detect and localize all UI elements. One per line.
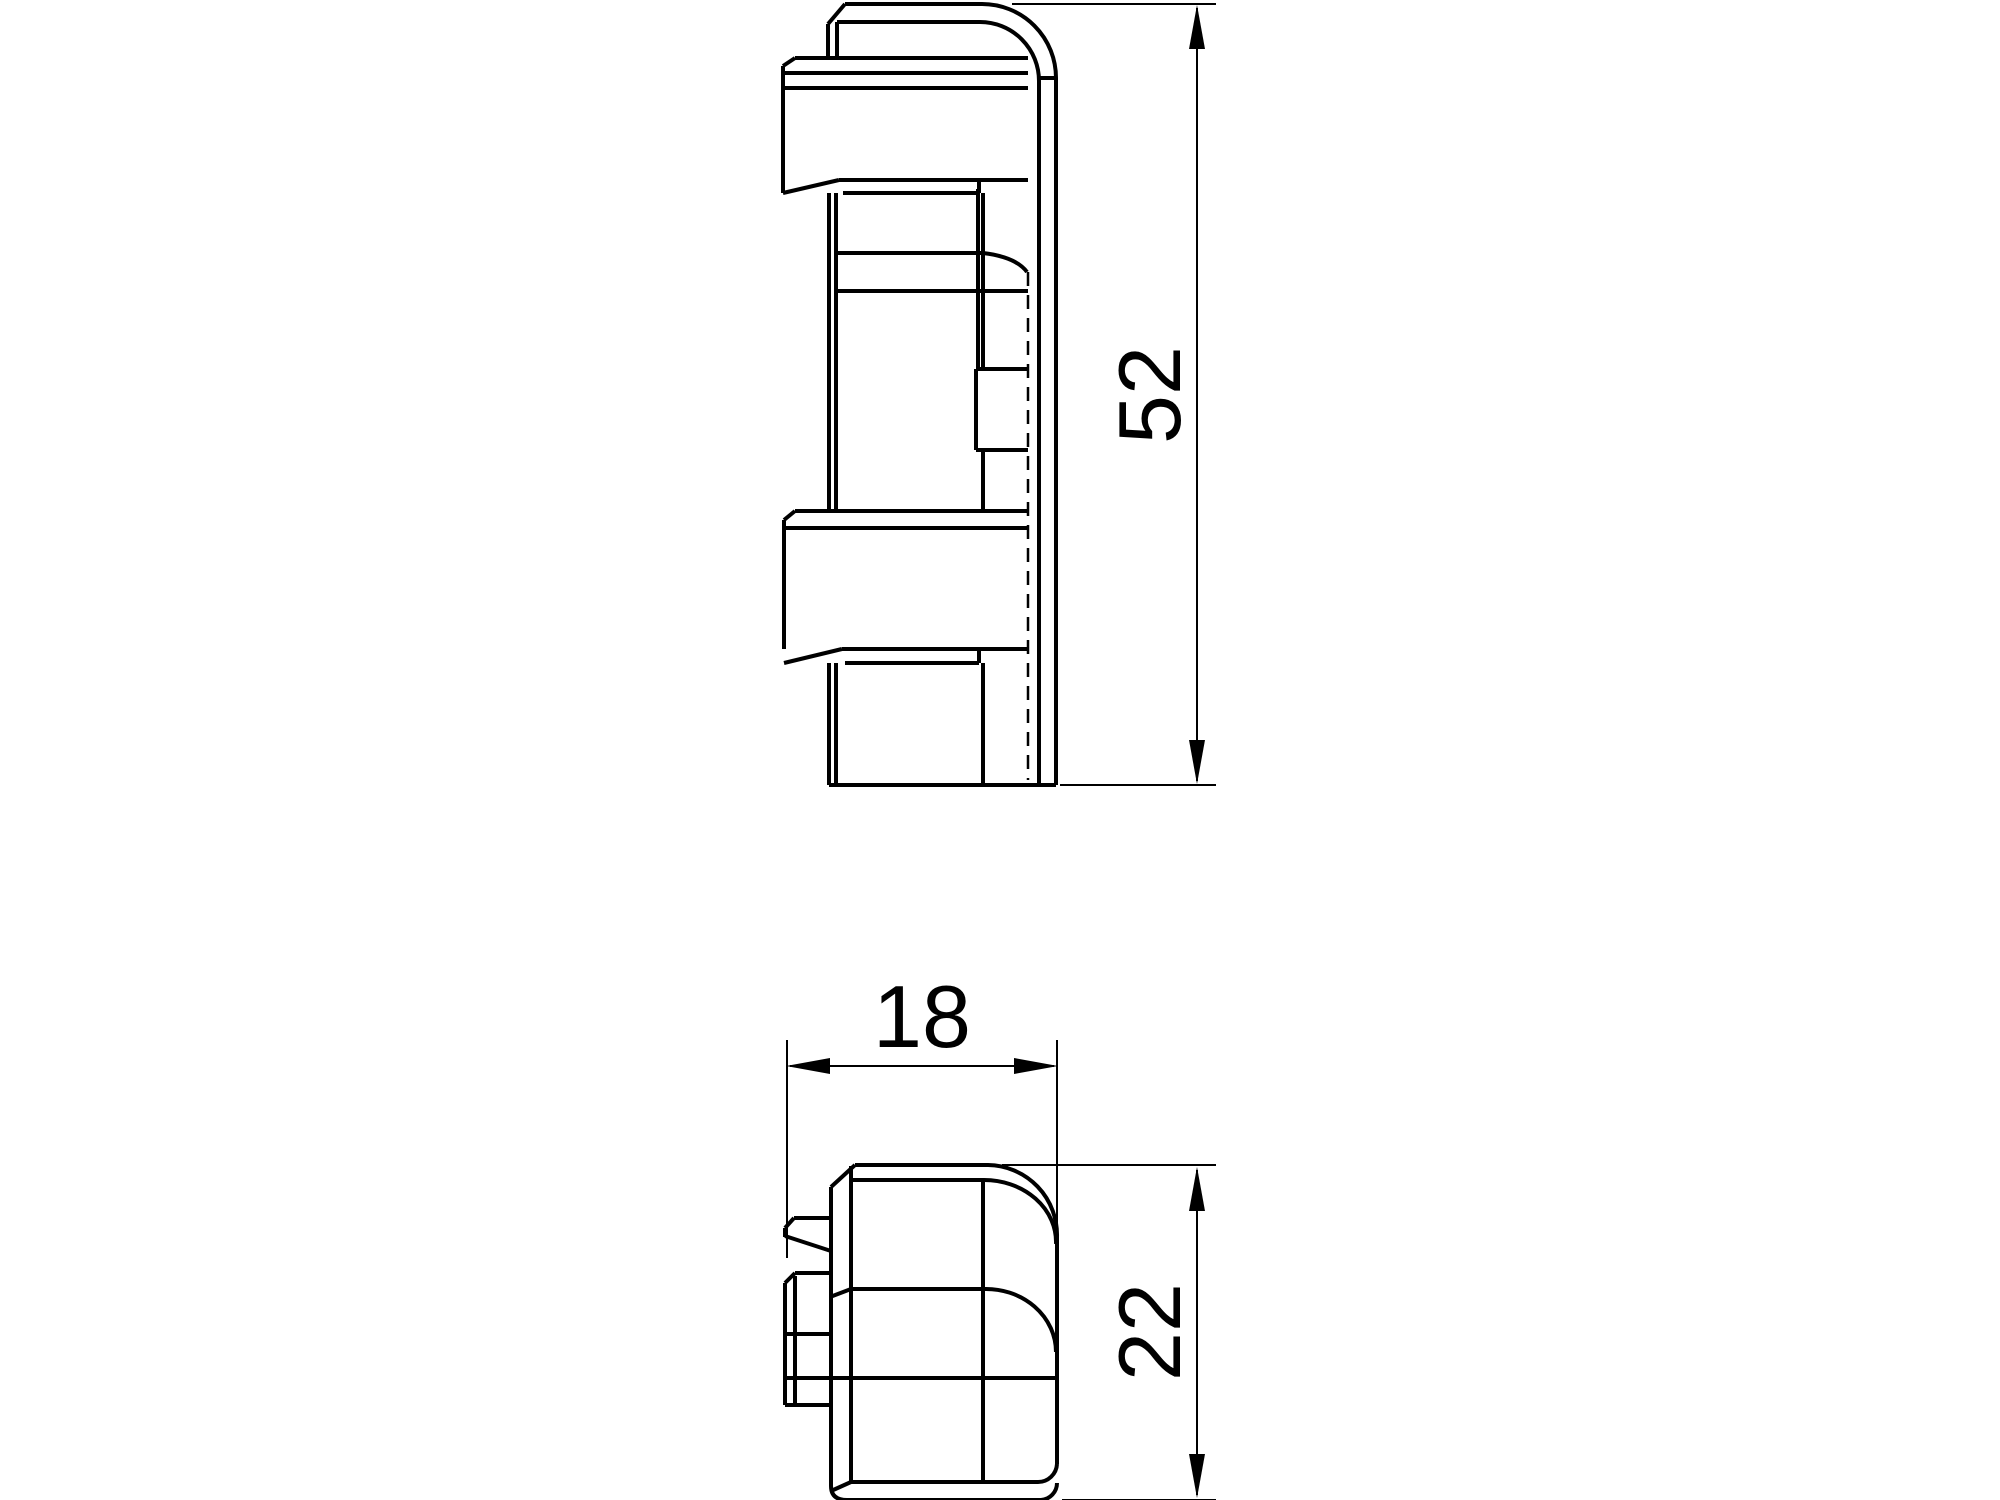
lower-block-bottom-bevel bbox=[784, 649, 842, 663]
arrow-up-icon bbox=[1189, 1167, 1205, 1211]
body-inner-top-arc bbox=[983, 1180, 1056, 1244]
body-outer-bottom bbox=[847, 1483, 1057, 1500]
dim-label-22: 22 bbox=[1100, 1283, 1199, 1381]
body-outer-top bbox=[855, 1165, 1057, 1237]
end-cap-technical-drawing: 52 18 bbox=[0, 0, 2000, 1500]
upper-block-bevel bbox=[783, 58, 795, 66]
plate-inner-edge bbox=[837, 22, 1039, 785]
body-mid-sweep-arc bbox=[983, 1289, 1056, 1352]
dimension-22: 22 bbox=[1002, 1165, 1216, 1500]
arrow-up-icon bbox=[1189, 5, 1205, 49]
upper-tab-bottom bbox=[785, 1236, 831, 1251]
body-left-outer bbox=[831, 1187, 847, 1500]
arrow-down-icon bbox=[1189, 740, 1205, 784]
upper-block-bottom-bevel bbox=[783, 180, 839, 193]
dimension-52: 52 bbox=[1012, 4, 1216, 785]
dimension-18: 18 bbox=[786, 967, 1058, 1258]
arrow-down-icon bbox=[1189, 1454, 1205, 1498]
body-bottom-right-corner bbox=[1038, 1464, 1057, 1482]
body-bottom-left-bevel bbox=[831, 1482, 851, 1491]
dim-label-52: 52 bbox=[1100, 346, 1199, 444]
technical-drawing-canvas: 52 18 bbox=[0, 0, 2000, 1500]
arrow-right-icon bbox=[1014, 1058, 1058, 1074]
plate-outer-edge bbox=[845, 4, 1056, 785]
arrow-left-icon bbox=[786, 1058, 830, 1074]
lower-block-bevel bbox=[784, 511, 795, 520]
latch-notch bbox=[976, 369, 1028, 450]
band-corner-arc bbox=[983, 253, 1027, 272]
side-view bbox=[783, 4, 1056, 785]
dim-label-18: 18 bbox=[873, 967, 971, 1066]
bottom-view bbox=[783, 1165, 1057, 1500]
